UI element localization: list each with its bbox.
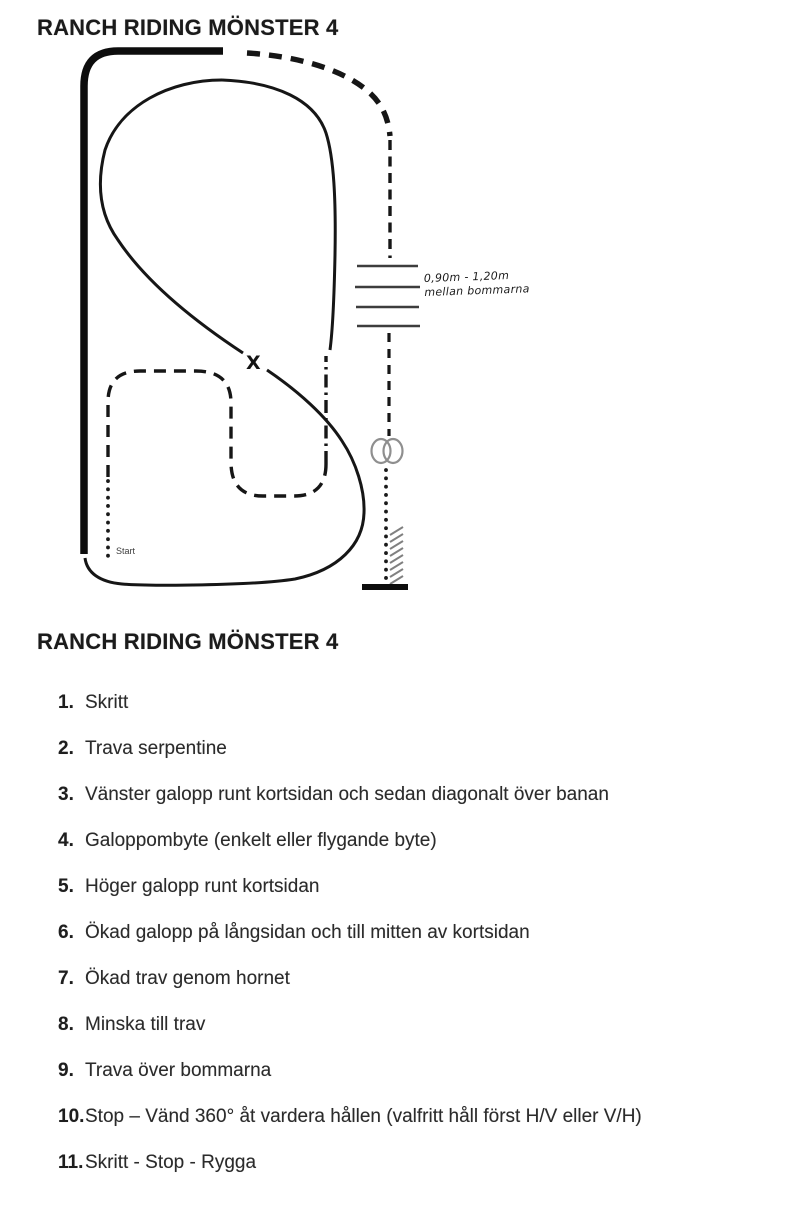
step-text: Trava över bommarna bbox=[85, 1060, 271, 1081]
hatch-mark bbox=[390, 562, 403, 570]
step-item-2: 2.Trava serpentine bbox=[58, 737, 642, 761]
step-text: Stop – Vänd 360° åt vardera hållen (valf… bbox=[85, 1106, 642, 1127]
step-number: 6. bbox=[58, 921, 85, 945]
hatch-mark bbox=[390, 569, 403, 577]
step-number: 10. bbox=[58, 1105, 85, 1129]
step-number: 8. bbox=[58, 1013, 85, 1037]
step-number: 4. bbox=[58, 829, 85, 853]
step-number: 2. bbox=[58, 737, 85, 761]
hatch-mark bbox=[390, 534, 403, 542]
step-text: Skritt - Stop - Rygga bbox=[85, 1152, 256, 1173]
lope-loop-right-side bbox=[222, 80, 335, 350]
step-item-7: 7.Ökad trav genom hornet bbox=[58, 967, 642, 991]
extended-lope-thick-line bbox=[84, 51, 223, 554]
step-number: 11. bbox=[58, 1151, 85, 1175]
spin-circle-right bbox=[384, 439, 403, 463]
step-text: Vänster galopp runt kortsidan och sedan … bbox=[85, 784, 609, 805]
step-item-11: 11.Skritt - Stop - Rygga bbox=[58, 1151, 642, 1175]
step-text: Ökad galopp på långsidan och till mitten… bbox=[85, 922, 530, 943]
step-number: 9. bbox=[58, 1059, 85, 1083]
list-title: RANCH RIDING MÖNSTER 4 bbox=[37, 629, 338, 655]
step-text: Trava serpentine bbox=[85, 738, 227, 759]
hatch-mark bbox=[390, 555, 403, 563]
pattern-sheet: RANCH RIDING MÖNSTER 4 0,90m - 1,20m mel… bbox=[0, 0, 800, 1210]
step-text: Ökad trav genom hornet bbox=[85, 968, 290, 989]
step-item-5: 5.Höger galopp runt kortsidan bbox=[58, 875, 642, 899]
poles-spacing-note-line2: mellan bommarna bbox=[424, 282, 530, 299]
step-number: 5. bbox=[58, 875, 85, 899]
hatch-mark bbox=[390, 548, 403, 556]
step-text: Galoppombyte (enkelt eller flygande byte… bbox=[85, 830, 437, 851]
step-item-6: 6.Ökad galopp på långsidan och till mitt… bbox=[58, 921, 642, 945]
lope-loop-left-and-diagonal bbox=[100, 80, 243, 353]
backup-hatch-marks bbox=[390, 527, 403, 584]
hatch-mark bbox=[390, 527, 403, 535]
step-item-9: 9.Trava över bommarna bbox=[58, 1059, 642, 1083]
spin-360-symbol bbox=[372, 439, 403, 463]
step-number: 1. bbox=[58, 691, 85, 715]
step-number: 7. bbox=[58, 967, 85, 991]
step-text: Skritt bbox=[85, 692, 128, 713]
pattern-steps: 1.Skritt 2.Trava serpentine 3.Vänster ga… bbox=[58, 691, 642, 1197]
step-text: Minska till trav bbox=[85, 1014, 205, 1035]
lead-change-marker-x: X bbox=[246, 352, 261, 374]
step-item-4: 4.Galoppombyte (enkelt eller flygande by… bbox=[58, 829, 642, 853]
step-item-10: 10.Stop – Vänd 360° åt vardera hållen (v… bbox=[58, 1105, 642, 1129]
hatch-mark bbox=[390, 576, 403, 584]
step-text: Höger galopp runt kortsidan bbox=[85, 876, 319, 897]
trot-poles bbox=[355, 266, 420, 326]
step-number: 3. bbox=[58, 783, 85, 807]
extended-trot-dashed-curve bbox=[247, 53, 390, 136]
step-item-8: 8.Minska till trav bbox=[58, 1013, 642, 1037]
step-item-1: 1.Skritt bbox=[58, 691, 642, 715]
pattern-diagram: 0,90m - 1,20m mellan bommarna bbox=[0, 0, 800, 620]
step-item-3: 3.Vänster galopp runt kortsidan och seda… bbox=[58, 783, 642, 807]
hatch-mark bbox=[390, 541, 403, 549]
start-label: Start bbox=[116, 546, 136, 556]
